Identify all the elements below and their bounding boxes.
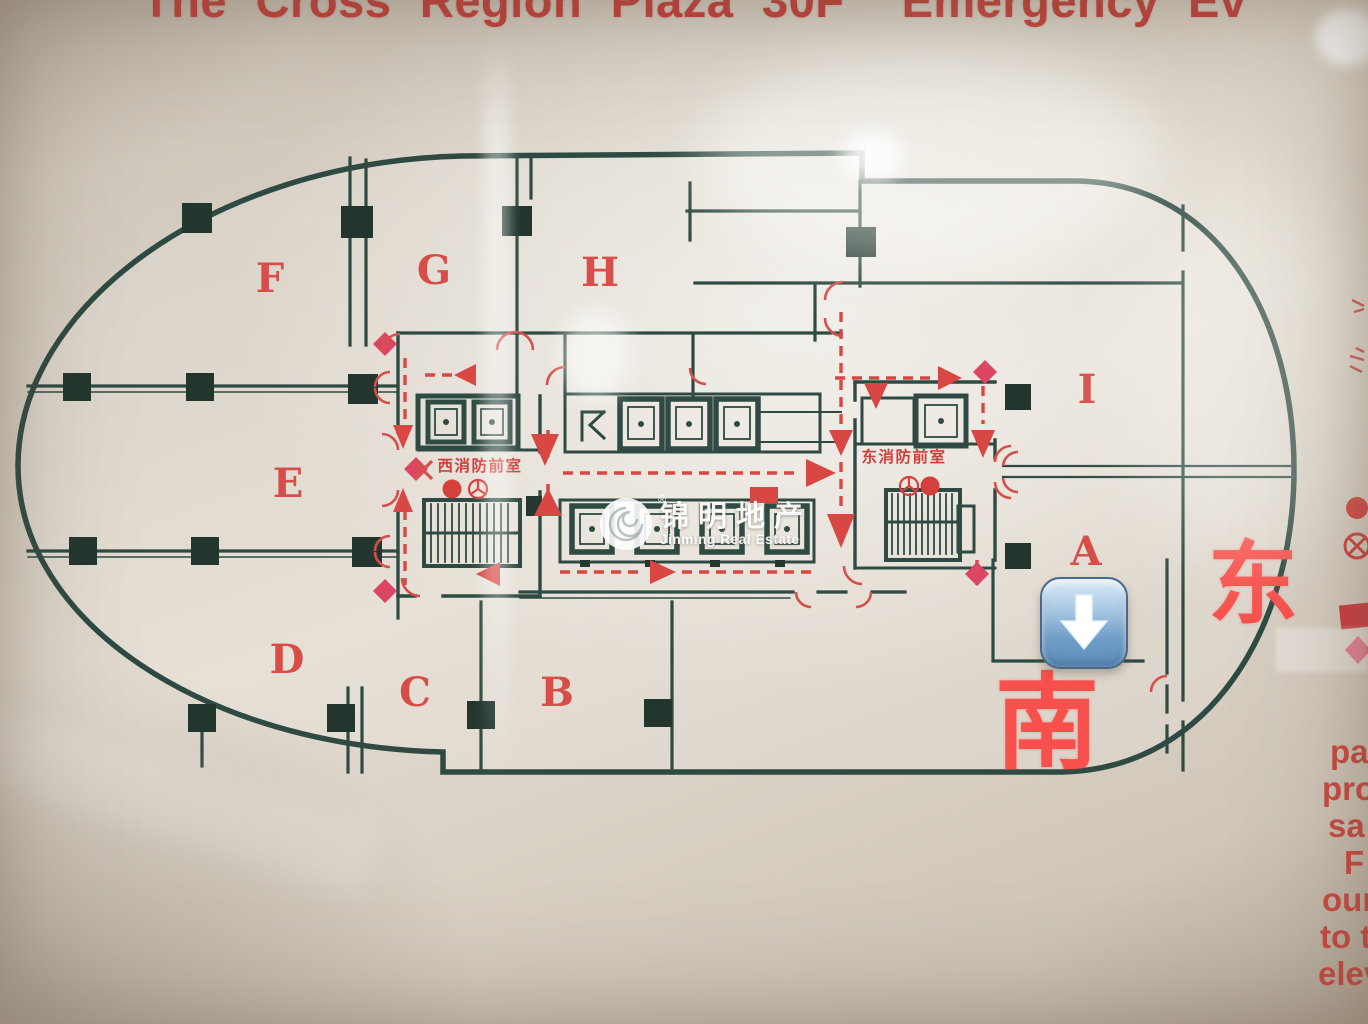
- edge-text-line: sa: [1328, 807, 1368, 844]
- fire-hydrant-dot: [921, 477, 940, 496]
- edge-text-line: to t: [1320, 918, 1368, 955]
- partial-glyph: [1352, 300, 1364, 312]
- edge-text-line: elev: [1318, 955, 1368, 992]
- fire-hydrant-dot: [443, 480, 462, 499]
- fire-hydrant-dot: [1346, 497, 1368, 519]
- red-rect-marker: [1339, 602, 1368, 629]
- partial-glyph: [1350, 348, 1364, 372]
- watermark: ® 锦明地产 Jinming Real Estate: [598, 496, 812, 552]
- edge-text-line: pa: [1330, 733, 1368, 770]
- zone-label-F: F: [256, 255, 284, 302]
- edge-text-line: pro: [1322, 770, 1368, 807]
- compass-east-label: 东: [1208, 540, 1298, 630]
- zone-label-D: D: [270, 636, 305, 683]
- watermark-cn: 锦明地产: [660, 502, 812, 532]
- zone-label-G: G: [417, 247, 451, 294]
- diamond-marker: [1345, 636, 1368, 664]
- zone-label-C: C: [399, 669, 431, 716]
- evacuation-plan-photo: The Cross Region Plaza 30F Emergency Ev: [0, 0, 1368, 1024]
- plan-title: The Cross Region Plaza 30F Emergency Ev: [142, 0, 1247, 28]
- down-arrow-icon: [1042, 579, 1126, 667]
- zone-label-H: H: [581, 249, 619, 296]
- down-arrow-sticker: [1040, 577, 1128, 669]
- west-core-label: 西消防前室: [437, 456, 522, 475]
- east-core-label: 东消防前室: [861, 447, 946, 466]
- watermark-en: Jinming Real Estate: [660, 532, 812, 547]
- edge-text-line: F: [1344, 844, 1368, 881]
- building-outline: [18, 153, 1294, 772]
- watermark-logo-icon: [598, 496, 654, 552]
- zone-label-E: E: [273, 460, 304, 507]
- zone-label-B: B: [540, 669, 574, 716]
- zone-label-I: I: [1078, 366, 1097, 413]
- compass-south-label: 南: [995, 672, 1099, 776]
- zone-label-A: A: [1069, 528, 1102, 575]
- crossed-circle-icon: [1345, 534, 1368, 558]
- edge-text-block: pa pro sa F our to t elev: [1322, 733, 1368, 992]
- registered-mark: ®: [658, 494, 666, 506]
- edge-text-line: our: [1322, 881, 1368, 918]
- edge-legend-symbols: [1339, 300, 1368, 664]
